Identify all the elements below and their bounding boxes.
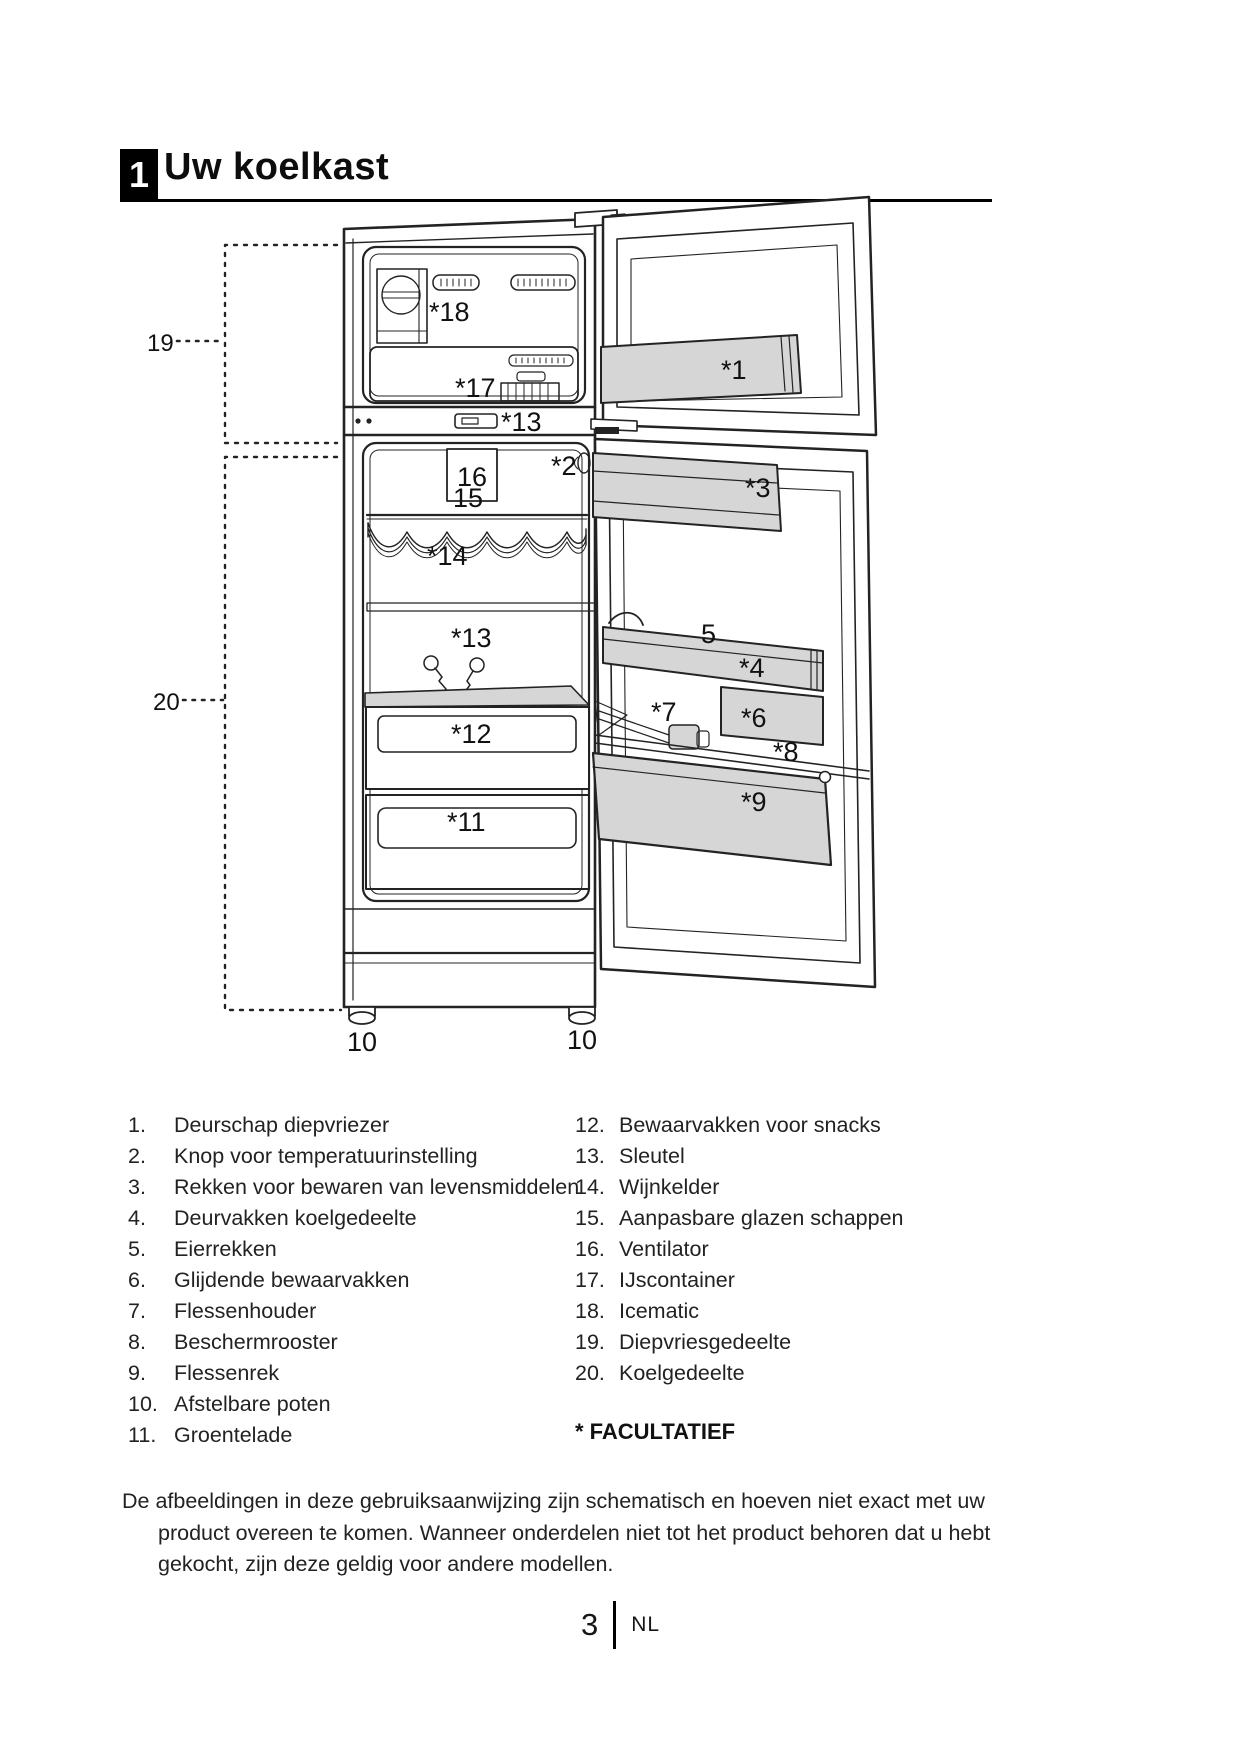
item-label: Wijnkelder xyxy=(619,1172,719,1203)
callout-door-racks: *3 xyxy=(745,473,771,503)
item-label: Afstelbare poten xyxy=(174,1389,331,1420)
item-label: IJscontainer xyxy=(619,1265,735,1296)
item-number: 6. xyxy=(128,1265,174,1296)
note-line: De afbeeldingen in deze gebruiksaanwijzi… xyxy=(122,1486,1002,1518)
section-number-badge: 1 xyxy=(120,149,158,200)
freezer-door-shelf xyxy=(601,335,801,403)
item-number: 3. xyxy=(128,1172,174,1203)
callout-glass-shelves: 15 xyxy=(453,483,483,513)
item-label: Deurvakken koelgedeelte xyxy=(174,1203,417,1234)
item-label: Koelgedeelte xyxy=(619,1358,745,1389)
fridge-door xyxy=(593,439,875,987)
item-label: Diepvriesgedeelte xyxy=(619,1327,791,1358)
optional-footnote: * FACULTATIEF xyxy=(575,1416,1015,1447)
item-label: Rekken voor bewaren van levensmiddelen xyxy=(174,1172,579,1203)
callout-key-top: *13 xyxy=(501,407,542,437)
note-line: product overeen te komen. Wanneer onderd… xyxy=(122,1518,1002,1550)
list-item: 9.Flessenrek xyxy=(128,1358,568,1389)
item-number: 13. xyxy=(575,1141,619,1172)
item-number: 2. xyxy=(128,1141,174,1172)
fridge-diagram: 19 20 *18 *17 *13 16 *2 15 *14 *13 *12 *… xyxy=(125,195,885,1065)
parts-list-right-column: 12.Bewaarvakken voor snacks 13.Sleutel 1… xyxy=(575,1110,1015,1447)
callout-bottle-holder: *7 xyxy=(651,697,677,727)
list-item: 13.Sleutel xyxy=(575,1141,1015,1172)
item-number: 4. xyxy=(128,1203,174,1234)
callout-wine-cellar: *14 xyxy=(427,541,468,571)
note-line: gekocht, zijn deze geldig voor andere mo… xyxy=(122,1549,1002,1581)
item-number: 5. xyxy=(128,1234,174,1265)
callout-snack-compartment: *12 xyxy=(451,719,492,749)
sliding-compartment xyxy=(721,687,823,745)
list-item: 8.Beschermrooster xyxy=(128,1327,568,1358)
list-item: 3.Rekken voor bewaren van levensmiddelen xyxy=(128,1172,568,1203)
list-item: 6.Glijdende bewaarvakken xyxy=(128,1265,568,1296)
freezer-door xyxy=(591,197,876,435)
item-number: 10. xyxy=(128,1389,174,1420)
item-label: Bewaarvakken voor snacks xyxy=(619,1110,881,1141)
item-number: 12. xyxy=(575,1110,619,1141)
door-latch xyxy=(595,427,619,434)
item-label: Glijdende bewaarvakken xyxy=(174,1265,409,1296)
parts-list-left-column: 1.Deurschap diepvriezer 2.Knop voor temp… xyxy=(128,1110,568,1451)
item-number: 20. xyxy=(575,1358,619,1389)
item-label: Deurschap diepvriezer xyxy=(174,1110,389,1141)
item-label: Groentelade xyxy=(174,1420,292,1451)
adjustable-foot-right xyxy=(569,1007,595,1024)
callout-ice-container: *17 xyxy=(455,373,496,403)
item-label: Aanpasbare glazen schappen xyxy=(619,1203,904,1234)
callout-protection-grille: *8 xyxy=(773,737,799,767)
list-item: 14.Wijnkelder xyxy=(575,1172,1015,1203)
item-number: 15. xyxy=(575,1203,619,1234)
callout-crisper: *11 xyxy=(447,807,486,837)
list-item: 15.Aanpasbare glazen schappen xyxy=(575,1203,1015,1234)
list-item: 1.Deurschap diepvriezer xyxy=(128,1110,568,1141)
list-item: 18.Icematic xyxy=(575,1296,1015,1327)
list-item: 10.Afstelbare poten xyxy=(128,1389,568,1420)
item-number: 18. xyxy=(575,1296,619,1327)
item-number: 9. xyxy=(128,1358,174,1389)
item-label: Icematic xyxy=(619,1296,699,1327)
callout-freezer-zone: 19 xyxy=(147,330,174,357)
list-item: 19.Diepvriesgedeelte xyxy=(575,1327,1015,1358)
page-number: 3 xyxy=(581,1607,598,1643)
item-label: Eierrekken xyxy=(174,1234,277,1265)
page-title: Uw koelkast xyxy=(164,146,389,189)
disclaimer-note: De afbeeldingen in deze gebruiksaanwijzi… xyxy=(122,1486,1002,1581)
item-number: 7. xyxy=(128,1296,174,1327)
item-label: Knop voor temperatuurinstelling xyxy=(174,1141,478,1172)
list-item: 5.Eierrekken xyxy=(128,1234,568,1265)
list-item: 11.Groentelade xyxy=(128,1420,568,1451)
list-item: 7.Flessenhouder xyxy=(128,1296,568,1327)
page-footer: 3 NL xyxy=(0,1598,1241,1652)
adjustable-foot-left xyxy=(349,1007,375,1024)
item-number: 16. xyxy=(575,1234,619,1265)
item-number: 19. xyxy=(575,1327,619,1358)
item-label: Beschermrooster xyxy=(174,1327,338,1358)
callout-foot-right: 10 xyxy=(567,1025,597,1055)
item-label: Flessenrek xyxy=(174,1358,279,1389)
fridge-line-drawing: 19 20 *18 *17 *13 16 *2 15 *14 *13 *12 *… xyxy=(125,195,885,1065)
item-number: 11. xyxy=(128,1420,174,1451)
zone-guides xyxy=(177,245,341,1010)
callout-fridge-zone: 20 xyxy=(153,689,180,716)
footer-divider xyxy=(613,1601,616,1649)
item-label: Flessenhouder xyxy=(174,1296,316,1327)
list-item: 20.Koelgedeelte xyxy=(575,1358,1015,1389)
list-item: 17.IJscontainer xyxy=(575,1265,1015,1296)
list-item: 12.Bewaarvakken voor snacks xyxy=(575,1110,1015,1141)
list-item: 2.Knop voor temperatuurinstelling xyxy=(128,1141,568,1172)
item-label: Ventilator xyxy=(619,1234,709,1265)
callout-temp-knob: *2 xyxy=(551,451,577,481)
callout-fridge-door-shelf: *4 xyxy=(739,653,765,683)
callout-icematic: *18 xyxy=(429,297,470,327)
callout-key-mid: *13 xyxy=(451,623,492,653)
item-number: 1. xyxy=(128,1110,174,1141)
list-item: 16.Ventilator xyxy=(575,1234,1015,1265)
item-number: 14. xyxy=(575,1172,619,1203)
callout-freezer-door-shelf: *1 xyxy=(721,355,747,385)
callout-foot-left: 10 xyxy=(347,1027,377,1057)
item-number: 8. xyxy=(128,1327,174,1358)
item-number: 17. xyxy=(575,1265,619,1296)
callout-sliding-compartment: *6 xyxy=(741,703,767,733)
item-label: Sleutel xyxy=(619,1141,685,1172)
cabinet-body xyxy=(344,210,625,1007)
manual-page: 1 Uw koelkast xyxy=(0,0,1241,1754)
list-item: 4.Deurvakken koelgedeelte xyxy=(128,1203,568,1234)
language-code: NL xyxy=(631,1613,660,1637)
callout-egg-rack: 5 xyxy=(701,619,716,649)
callout-bottle-rack: *9 xyxy=(741,787,767,817)
